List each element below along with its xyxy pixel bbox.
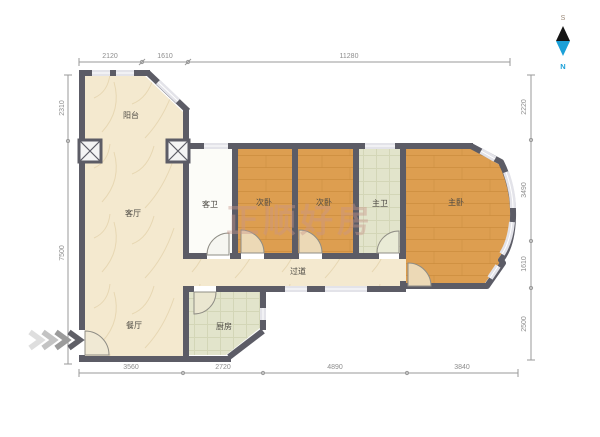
dim-right-1: 2220 <box>521 99 528 115</box>
master-bath-window <box>365 143 395 149</box>
kitchen-window <box>260 308 266 320</box>
dimension-top: 2120 1610 11280 <box>79 53 510 66</box>
room-label-kitchen: 厨房 <box>216 321 232 331</box>
watermark-text: 正顺好房 <box>226 202 374 239</box>
dimension-bottom: 3560 2720 4890 3840 <box>79 364 518 377</box>
dim-left-2: 7500 <box>59 245 66 261</box>
dim-top-1: 2120 <box>102 53 118 60</box>
compass-south-label: S <box>561 15 566 22</box>
dimension-right: 2220 3490 1610 2500 <box>521 75 535 360</box>
floorplan-viewer: 正顺好房 阳台 客厅 客卫 次卧 次卧 主卫 主卧 过道 餐厅 厨房 2120 … <box>0 0 600 437</box>
room-label-dining: 餐厅 <box>126 321 142 330</box>
entry-arrows-icon <box>30 332 80 348</box>
room-label-balcony: 阳台 <box>123 110 139 120</box>
room-label-living: 客厅 <box>125 208 141 218</box>
dim-top-3: 11280 <box>340 53 359 60</box>
room-label-bedroom-a: 次卧 <box>256 197 272 207</box>
dim-bottom-2: 2720 <box>215 364 231 371</box>
dim-bottom-4: 3840 <box>454 364 470 371</box>
dim-top-2: 1610 <box>157 53 173 60</box>
room-label-bedroom-b: 次卧 <box>316 197 332 207</box>
guest-bath-window <box>204 143 228 149</box>
dim-right-2: 3490 <box>521 182 528 198</box>
dim-bottom-3: 4890 <box>327 364 343 371</box>
column-icon <box>79 140 101 162</box>
compass-needle-south <box>556 26 570 41</box>
compass-icon: S N <box>556 15 570 71</box>
dim-bottom-1: 3560 <box>123 364 139 371</box>
dim-right-4: 2500 <box>521 316 528 332</box>
room-label-guest-bath: 客卫 <box>202 199 218 209</box>
floor-master-bedroom <box>406 149 510 283</box>
room-label-master-bath: 主卫 <box>372 198 388 208</box>
dim-right-3: 1610 <box>521 256 528 272</box>
floorplan-canvas: 正顺好房 阳台 客厅 客卫 次卧 次卧 主卫 主卧 过道 餐厅 厨房 2120 … <box>0 0 600 437</box>
hallway-window <box>285 286 367 292</box>
compass-needle-north <box>556 41 570 56</box>
dim-left-1: 2310 <box>59 100 66 116</box>
room-label-master-bedroom: 主卧 <box>448 197 464 207</box>
dimension-left: 2310 7500 <box>59 75 72 364</box>
column-icon <box>167 140 189 162</box>
compass-north-label: N <box>560 62 565 71</box>
room-label-hallway: 过道 <box>290 266 306 276</box>
